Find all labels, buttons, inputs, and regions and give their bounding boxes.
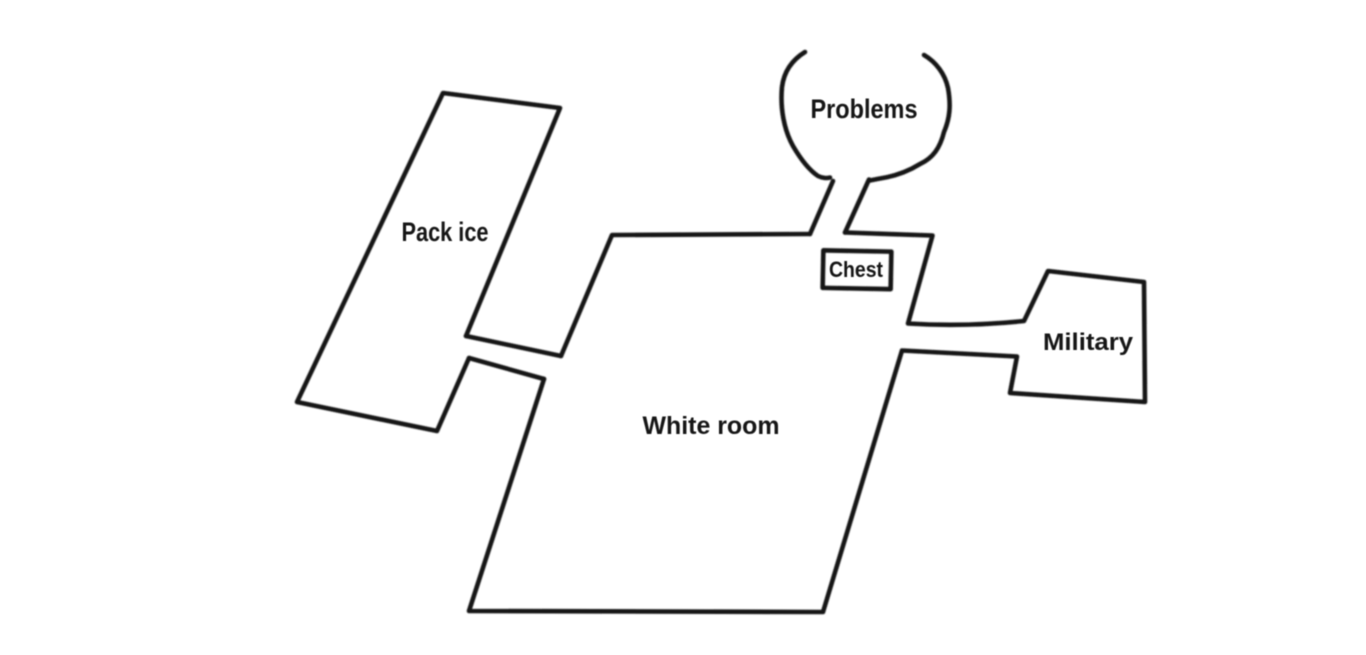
svg-text:Military: Military (1043, 329, 1134, 356)
svg-text:Problems: Problems (811, 94, 918, 124)
svg-text:White room: White room (643, 412, 780, 440)
svg-text:Chest: Chest (829, 257, 884, 282)
svg-text:Pack ice: Pack ice (402, 217, 489, 247)
